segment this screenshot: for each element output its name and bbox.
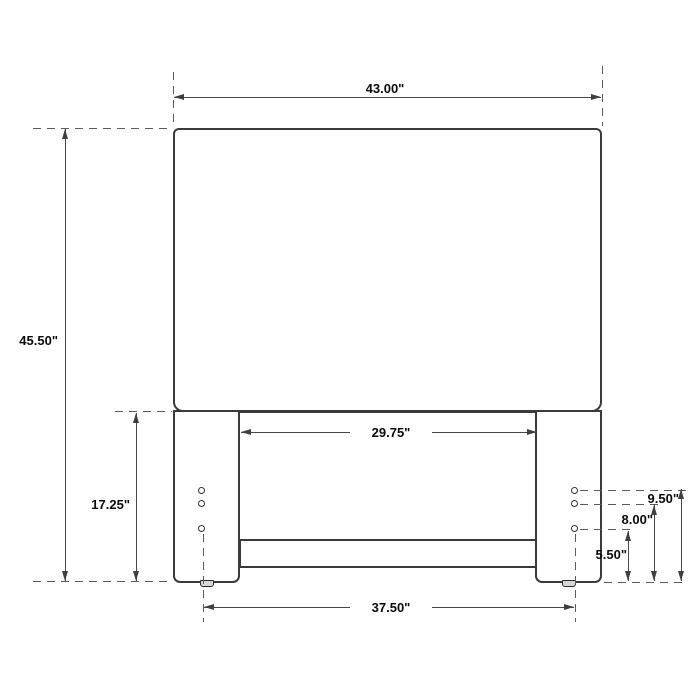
extension-line-top-left [33, 128, 173, 129]
dim-hole-top-label: 9.50" [629, 492, 679, 505]
arrowhead [174, 94, 184, 100]
arrowhead [204, 604, 214, 610]
arrowhead [678, 571, 684, 581]
arrowhead [527, 429, 537, 435]
arrowhead [62, 571, 68, 581]
arrowhead [651, 571, 657, 581]
dim-inner-width-label: 29.75" [350, 426, 432, 439]
arrowhead [133, 413, 139, 423]
dim-leg-height-label: 17.25" [58, 498, 130, 511]
dim-hole-middle-label: 8.00" [603, 513, 653, 526]
extension-line-width-right [602, 66, 603, 126]
arrowhead [625, 571, 631, 581]
bolt-hole-left-middle [198, 500, 205, 507]
dim-line-hole-middle [654, 505, 655, 581]
bolt-hole-right-middle [571, 500, 578, 507]
dim-hole-span-label: 37.50" [350, 601, 432, 614]
dim-hole-bottom-label: 5.50" [577, 548, 627, 561]
dim-line-overall-width [174, 97, 601, 98]
centerline-right-hole [575, 534, 576, 622]
arrowhead [625, 531, 631, 541]
arrowhead [241, 429, 251, 435]
arrowhead [133, 571, 139, 581]
extension-line-bottom-right [604, 582, 688, 583]
headboard-panel-outline [173, 128, 602, 412]
bolt-hole-left-top [198, 487, 205, 494]
bolt-hole-right-bottom [571, 525, 578, 532]
headboard-dimension-drawing: 43.00" 45.50" 17.25" 29.75" 37.50" 9.50"… [0, 0, 700, 700]
arrowhead [564, 604, 574, 610]
dim-line-leg-height [136, 413, 137, 581]
extension-line-leg-top [115, 411, 172, 412]
extension-line-bottom-left [33, 581, 172, 582]
cross-rail-outline [239, 539, 538, 568]
arrowhead [591, 94, 601, 100]
bolt-hole-left-bottom [198, 525, 205, 532]
dim-line-hole-top [681, 489, 682, 581]
right-foot-glide [562, 580, 576, 587]
dim-overall-height-label: 45.50" [0, 334, 58, 347]
left-leg-outline [173, 412, 240, 583]
extension-line-hole-bottom [580, 529, 633, 530]
arrowhead [62, 129, 68, 139]
dim-line-overall-height [65, 129, 66, 581]
dim-overall-width-label: 43.00" [335, 82, 435, 95]
bolt-hole-right-top [571, 487, 578, 494]
